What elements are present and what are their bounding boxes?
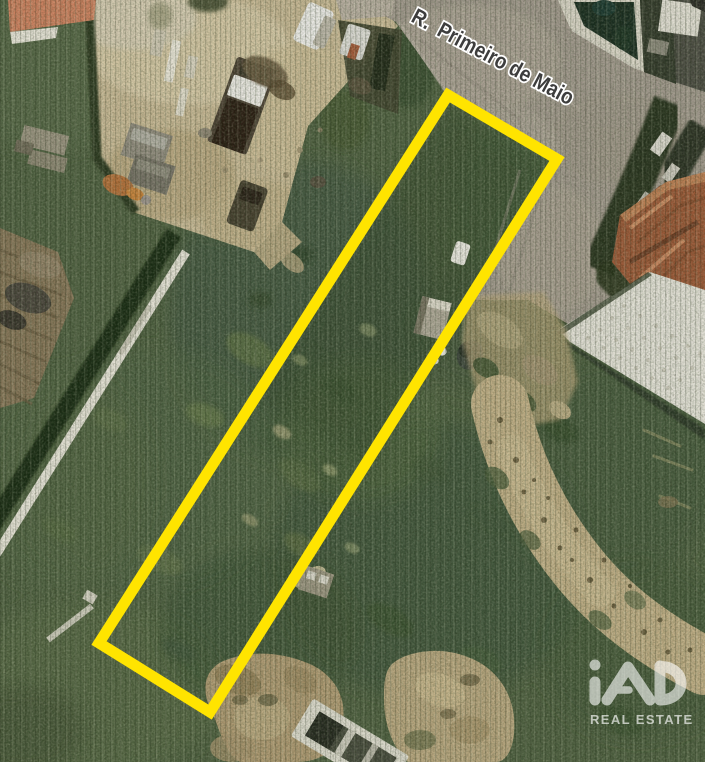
svg-text:REAL ESTATE: REAL ESTATE	[590, 712, 694, 727]
